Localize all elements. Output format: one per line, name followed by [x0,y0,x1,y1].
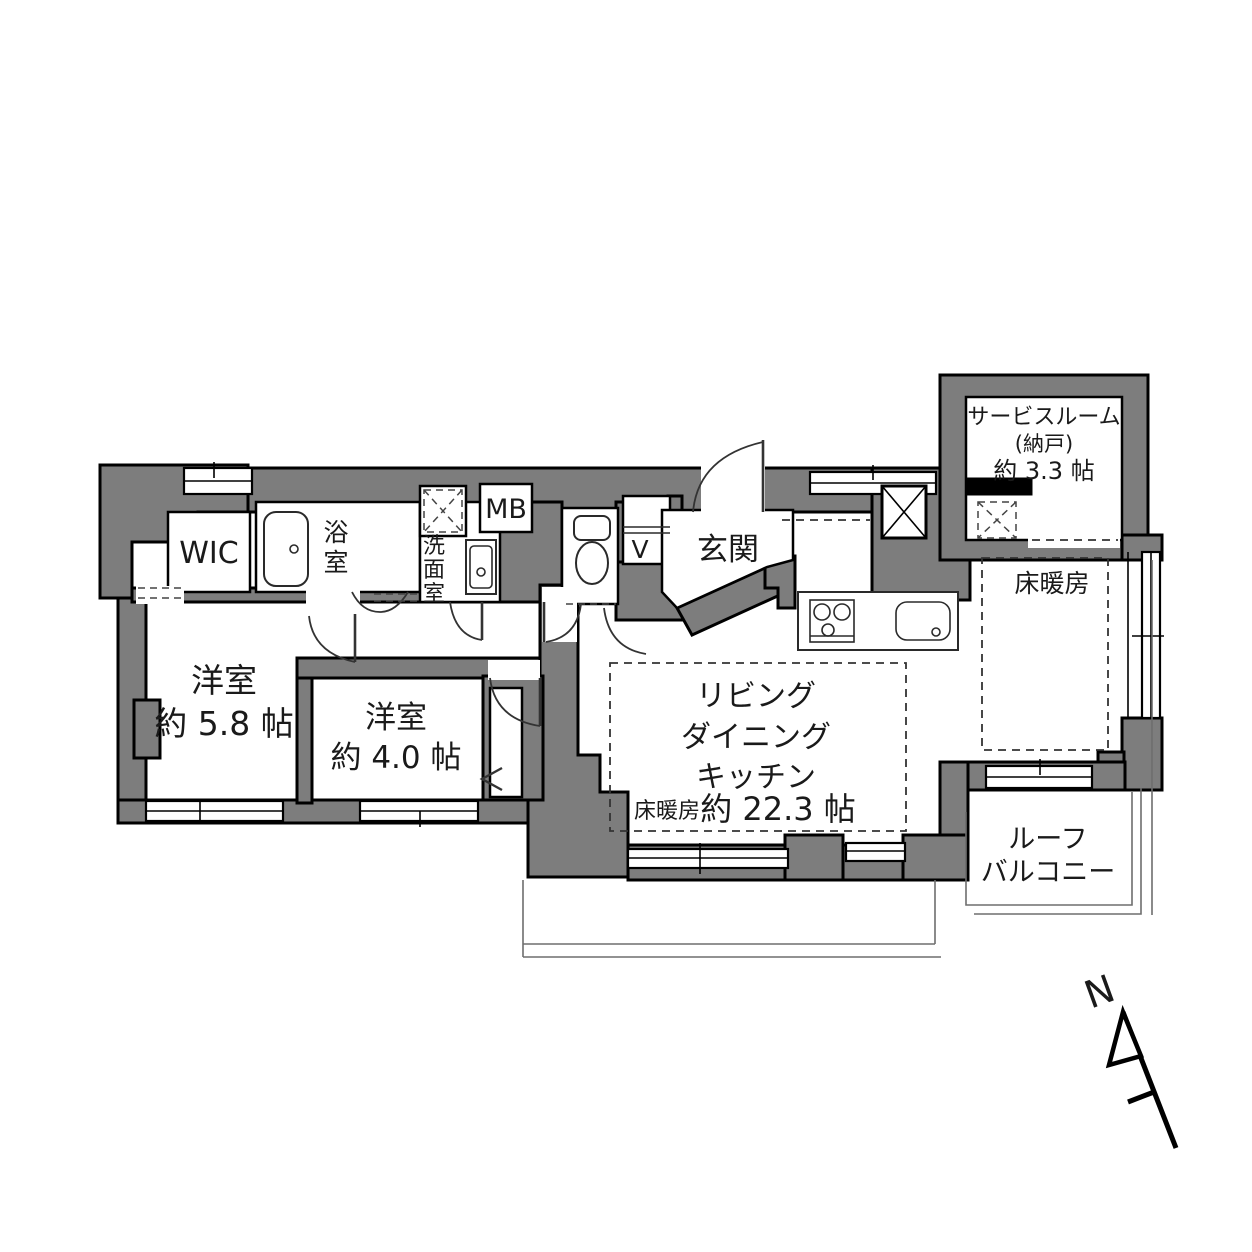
roof-balcony-label-2: バルコニー [981,857,1115,888]
washroom-door-swing [450,602,482,640]
wall-ldk-south-pier2 [903,835,968,880]
north-label: N [1079,966,1121,1017]
wic-label: WIC [179,536,238,571]
bathroom-label-1: 浴 [323,518,348,547]
washroom-label-1: 洗 [423,534,445,559]
bathtub-fixture [264,512,308,586]
bedroom40-size: 約 4.0 帖 [330,740,461,776]
bedroom58-door-swing [309,616,355,662]
wall-between-bedrooms [297,658,312,803]
bedroom40-name: 洋室 [365,700,427,736]
floorplan-drawing: N WIC 浴 室 洗 面 室 MB V 玄関 サービスルーム (納戸) 約 3… [0,0,1252,1252]
washroom-label-2: 面 [423,558,445,583]
meter-box-label: MB [485,494,527,525]
floorplan-canvas: N WIC 浴 室 洗 面 室 MB V 玄関 サービスルーム (納戸) 約 3… [0,0,1252,1252]
bedroom40-closet [490,688,522,797]
bathroom-label-2: 室 [323,548,348,577]
ldk-size-label: 約 22.3 帖 [700,790,856,828]
balcony-strip-outline [523,880,941,957]
toilet-tank [574,516,610,540]
ldk-heating-label: 床暖房 [634,799,700,824]
roof-balcony-label-1: ルーフ [1008,824,1087,855]
shoe-box-label: V [631,535,648,564]
north-arrow-icon: N [1079,966,1176,1148]
ldk-label-2: ダイニング [681,720,831,755]
bedroom58-name: 洋室 [191,661,257,700]
floor-heating-label: 床暖房 [1014,569,1089,598]
entrance-label: 玄関 [697,532,759,568]
ldk-label-1: リビング [696,679,816,714]
wall-ldk-south-pier1 [785,835,843,880]
service-room-label-1: サービスルーム [967,405,1120,430]
wall-east-pier [1122,718,1162,790]
opening-hall-ldk [542,587,577,642]
north-arrow-head [1109,1012,1141,1065]
north-arrow-tick [1128,1092,1154,1102]
washroom-label-3: 室 [423,582,445,607]
toilet-bowl [576,542,608,584]
bedroom58-size: 約 5.8 帖 [154,704,293,743]
service-room-label-2: (納戸) [1015,432,1073,456]
window-ldk-south-2 [846,843,905,861]
opening-entrance [701,464,765,514]
opening-bedroom40 [488,660,540,680]
opening-bedroom58 [306,584,360,604]
service-room-label-3: 約 3.3 帖 [993,457,1094,485]
